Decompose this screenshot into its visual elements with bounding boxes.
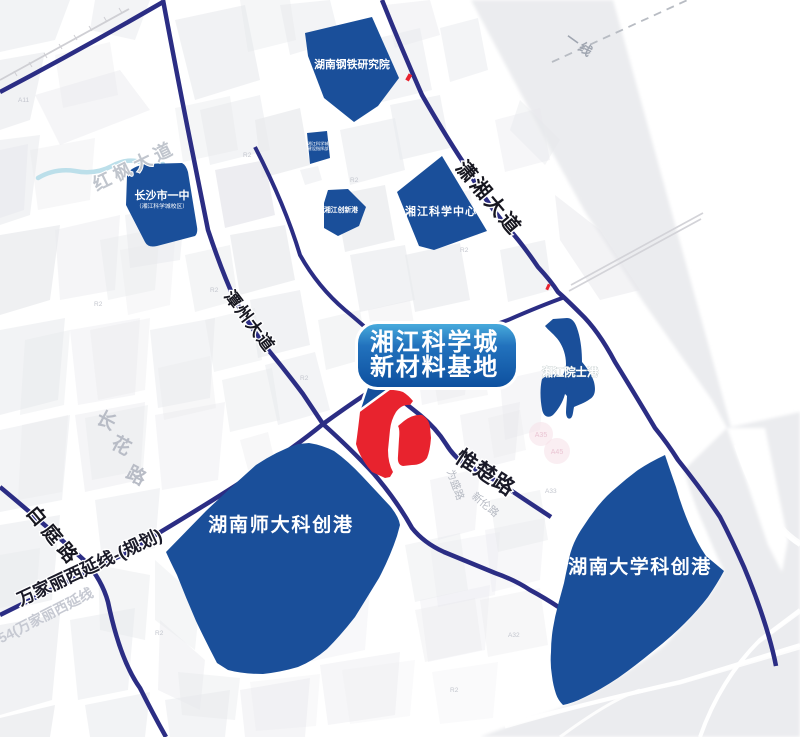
svg-text:湘江科学中心: 湘江科学中心 bbox=[405, 204, 477, 218]
svg-text:A45: A45 bbox=[551, 449, 564, 456]
svg-text:湘江创新港: 湘江创新港 bbox=[324, 205, 358, 214]
svg-text:R2: R2 bbox=[450, 687, 459, 694]
svg-text:R2: R2 bbox=[350, 177, 359, 184]
svg-text:A35: A35 bbox=[535, 432, 548, 439]
svg-text:A32: A32 bbox=[508, 632, 520, 639]
svg-text:建设指挥部: 建设指挥部 bbox=[308, 145, 329, 152]
svg-text:新材料基地: 新材料基地 bbox=[370, 353, 499, 381]
svg-text:R2: R2 bbox=[460, 247, 469, 254]
svg-text:（湘江科学城校区）: （湘江科学城校区） bbox=[136, 202, 188, 210]
svg-text:R2: R2 bbox=[243, 152, 252, 159]
svg-text:R2: R2 bbox=[210, 287, 219, 294]
svg-text:长沙市一中: 长沙市一中 bbox=[135, 188, 190, 202]
svg-text:R2: R2 bbox=[155, 630, 164, 637]
svg-text:R2: R2 bbox=[300, 375, 309, 382]
svg-text:湖南钢铁研究院: 湖南钢铁研究院 bbox=[314, 57, 390, 71]
svg-text:R2: R2 bbox=[94, 301, 103, 308]
svg-text:湘江院士港: 湘江院士港 bbox=[542, 365, 599, 379]
svg-text:湘江科学城: 湘江科学城 bbox=[370, 328, 499, 356]
svg-text:湖南大学科创港: 湖南大学科创港 bbox=[568, 555, 712, 578]
svg-text:湖南师大科创港: 湖南师大科创港 bbox=[208, 513, 354, 536]
svg-text:A33: A33 bbox=[545, 488, 557, 495]
svg-text:A11: A11 bbox=[18, 97, 29, 104]
